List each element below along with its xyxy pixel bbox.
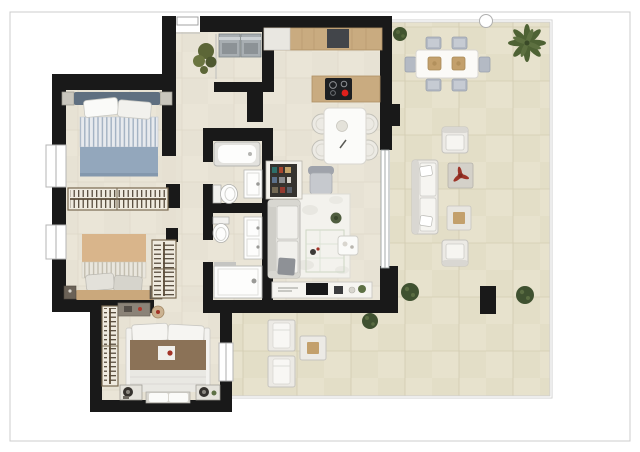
toilet (213, 217, 229, 243)
armchair (308, 166, 334, 194)
nightstand (120, 385, 142, 400)
outdoor-dining-table (416, 50, 478, 78)
bench (146, 392, 190, 403)
tv-sideboard (272, 282, 372, 298)
shower (214, 262, 262, 298)
plant-deco (358, 285, 366, 293)
headboard (76, 290, 154, 300)
window (46, 145, 66, 187)
wardrobe (68, 188, 168, 210)
shower-glass (214, 262, 236, 266)
bookshelf (266, 161, 302, 199)
double-bed-blue (80, 97, 158, 176)
island-with-cooktop (312, 76, 380, 102)
dining-table (324, 108, 366, 164)
outdoor-armchair (442, 240, 468, 266)
outdoor-coffee-table (448, 163, 473, 188)
glass-sliding-door (381, 150, 389, 268)
desk (118, 303, 150, 316)
wardrobe (102, 306, 118, 386)
pillow (83, 97, 119, 117)
floor-plan (0, 0, 640, 452)
outdoor-armchair (442, 127, 468, 153)
double-bed-tan (76, 234, 154, 300)
window (219, 343, 233, 381)
balustrade-marker (480, 15, 493, 28)
lounger-table (300, 336, 326, 360)
pillow (132, 323, 169, 342)
nightstand (160, 92, 172, 105)
wardrobe (152, 240, 176, 298)
dryer (241, 34, 261, 57)
utility-closet (219, 34, 261, 57)
toilet (213, 185, 238, 204)
sofa (268, 200, 300, 278)
cooktop (325, 78, 352, 100)
kitchen-appliance (327, 29, 349, 48)
nightstand (196, 385, 220, 400)
active-burner (342, 90, 349, 97)
stool (152, 306, 164, 318)
terrace-pillar (480, 286, 496, 314)
bathtub (214, 142, 260, 166)
outdoor-side-table (447, 206, 471, 230)
window (46, 225, 66, 259)
plate-deco (337, 121, 348, 132)
washer (219, 34, 240, 57)
shower-head (252, 279, 257, 284)
washbasin (244, 170, 262, 198)
entry-door (177, 17, 198, 25)
double-bed-brown (126, 323, 210, 392)
lounger (268, 320, 295, 351)
washbasin (244, 217, 262, 259)
pillow (117, 100, 151, 120)
outdoor-sofa (412, 160, 438, 234)
throw-blanket (277, 257, 295, 275)
palm-tree (508, 24, 546, 62)
nightstand (62, 92, 74, 105)
lounger (268, 356, 295, 387)
coffee-plant (331, 213, 342, 224)
wall-counter (264, 28, 382, 50)
bush (393, 27, 407, 41)
pillow (85, 273, 114, 291)
tv (306, 283, 328, 295)
side-table (338, 236, 358, 255)
